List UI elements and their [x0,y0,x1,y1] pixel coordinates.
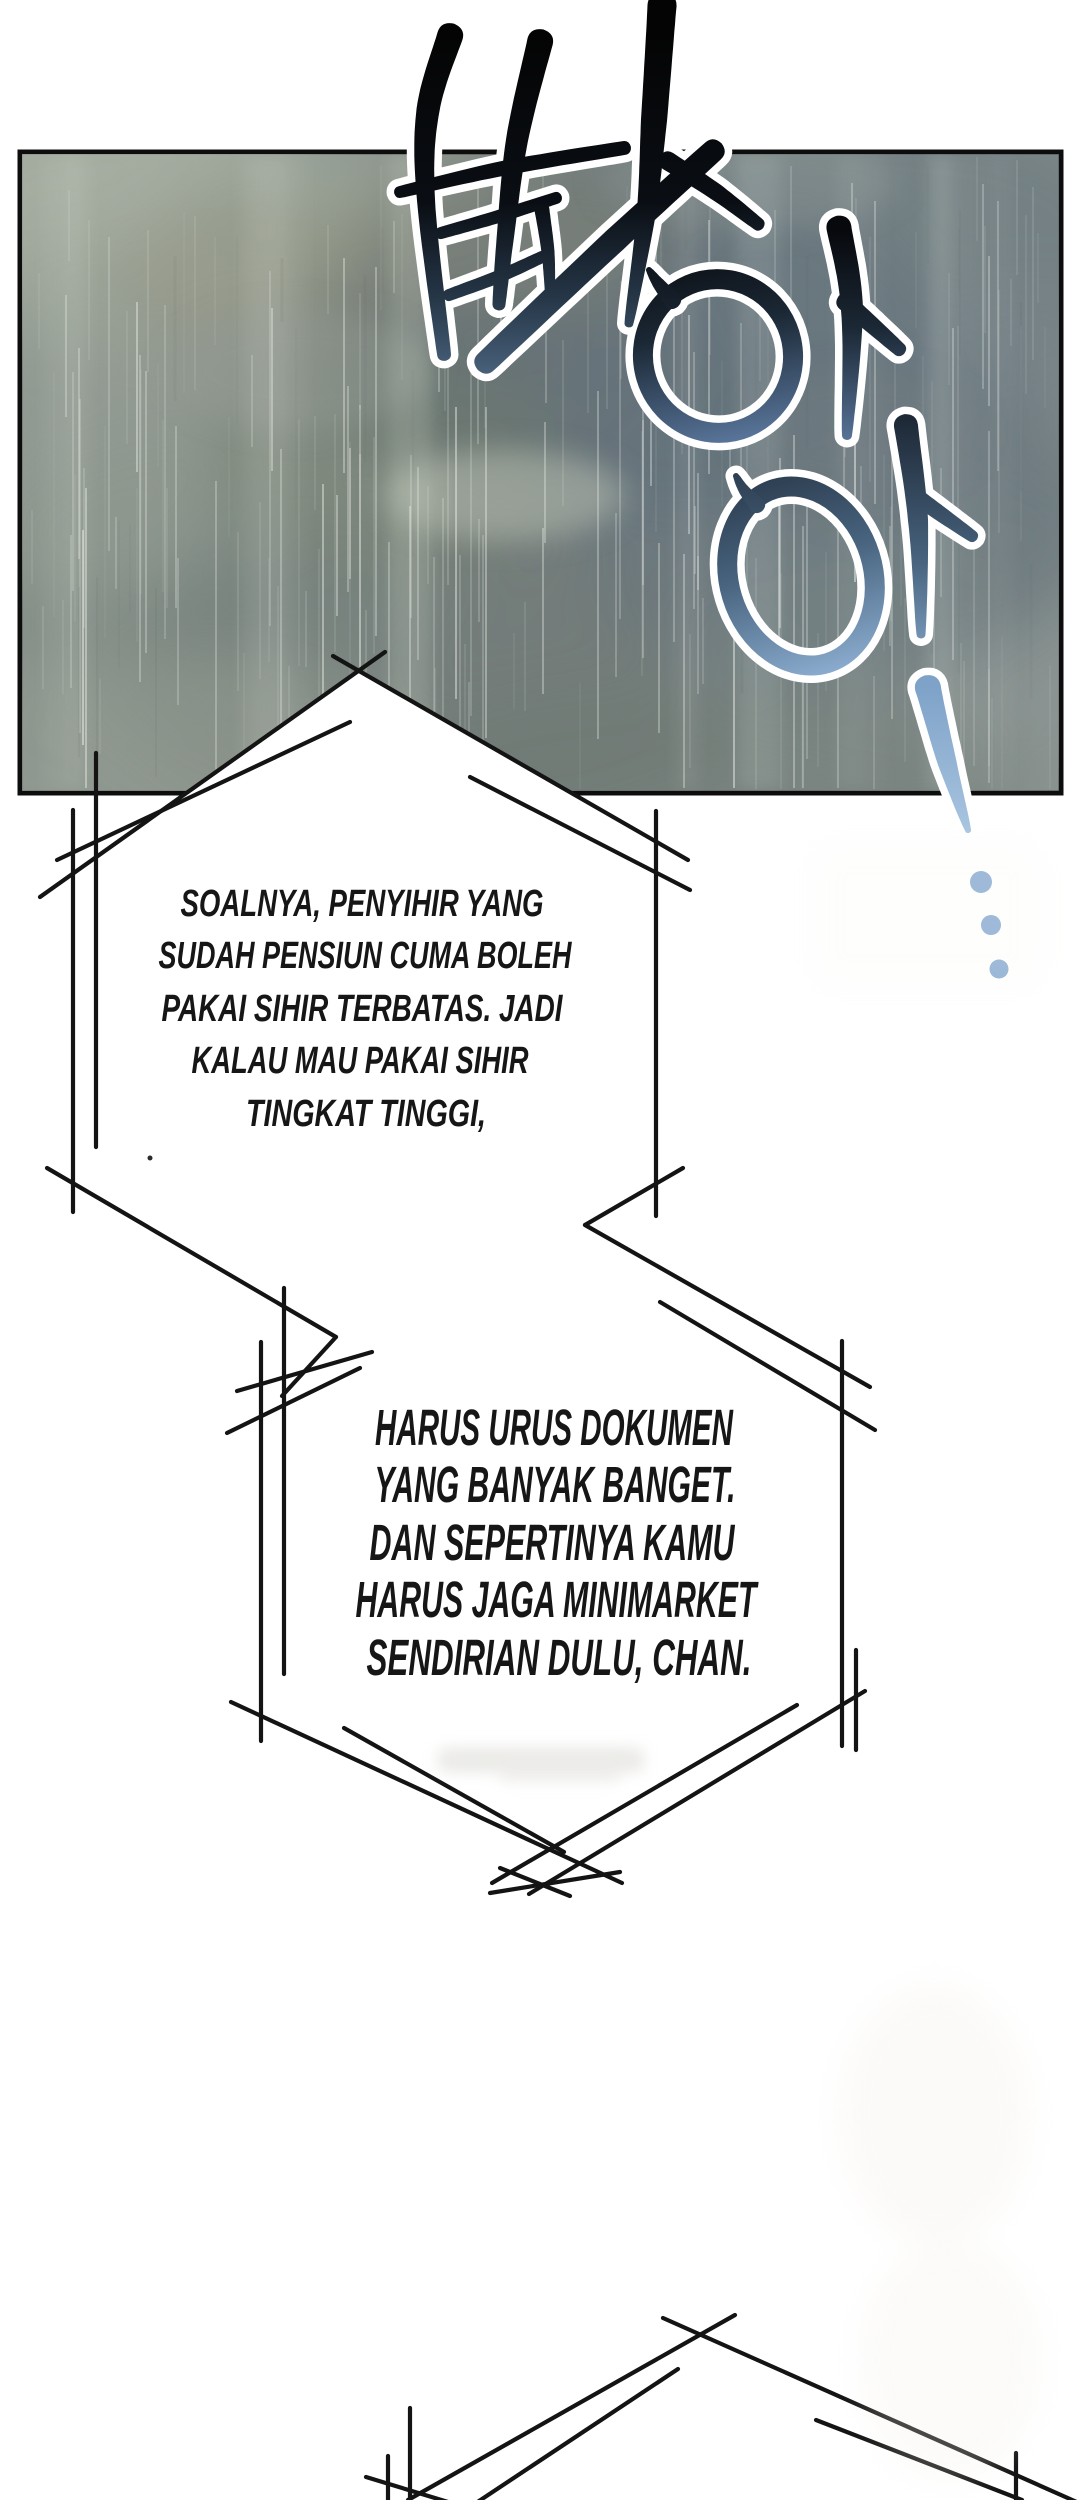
svg-text:DAN SEPERTINYA KAMU: DAN SEPERTINYA KAMU [370,1514,736,1571]
svg-text:HARUS URUS DOKUMEN: HARUS URUS DOKUMEN [375,1399,734,1456]
svg-text:PAKAI SIHIR TERBATAS. JADI: PAKAI SIHIR TERBATAS. JADI [162,988,564,1030]
svg-text:YANG BANYAK BANGET.: YANG BANYAK BANGET. [375,1456,736,1513]
svg-text:SENDIRIAN DULU, CHAN.: SENDIRIAN DULU, CHAN. [367,1629,752,1686]
svg-text:SOALNYA, PENYIHIR YANG: SOALNYA, PENYIHIR YANG [181,883,544,925]
svg-text:HARUS JAGA MINIMARKET: HARUS JAGA MINIMARKET [356,1571,759,1628]
svg-text:SUDAH PENSIUN CUMA BOLEH: SUDAH PENSIUN CUMA BOLEH [159,935,573,977]
svg-text:KALAU MAU PAKAI SIHIR: KALAU MAU PAKAI SIHIR [192,1040,529,1082]
svg-text:TINGKAT TINGGI,: TINGKAT TINGGI, [246,1093,486,1135]
